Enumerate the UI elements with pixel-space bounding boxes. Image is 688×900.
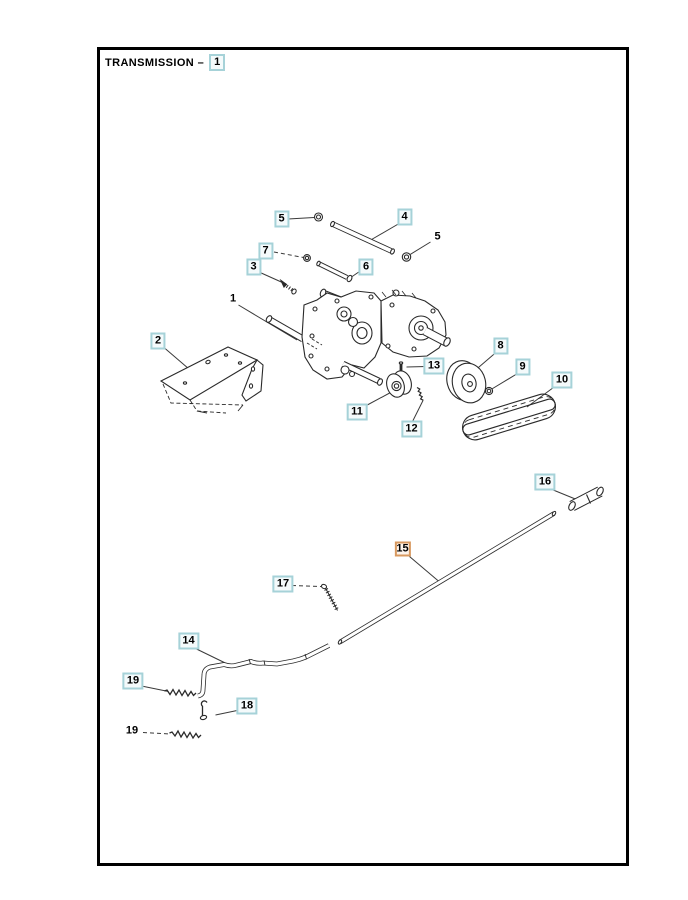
callout-part-4[interactable]: 4 bbox=[397, 208, 412, 225]
callout-part-18[interactable]: 18 bbox=[236, 697, 257, 714]
callout-part-2[interactable]: 2 bbox=[150, 332, 165, 349]
part-sleeve-16 bbox=[567, 486, 604, 511]
callout-part-3[interactable]: 3 bbox=[246, 258, 261, 275]
callout-part-1: 1 bbox=[230, 294, 236, 305]
part-screw-17 bbox=[321, 584, 338, 611]
part-mounting-bracket bbox=[161, 347, 263, 413]
part-nut-7 bbox=[304, 255, 311, 262]
part-nut-9 bbox=[485, 387, 492, 394]
part-nut-5-left bbox=[315, 213, 323, 221]
part-idler-roller-11 bbox=[384, 368, 415, 399]
callout-part-17[interactable]: 17 bbox=[272, 576, 293, 593]
callout-part-5-b: 5 bbox=[434, 232, 440, 243]
exploded-diagram bbox=[0, 0, 688, 900]
callout-part-6[interactable]: 6 bbox=[358, 258, 373, 275]
page-title-text: TRANSMISSION – bbox=[105, 57, 204, 69]
callout-part-12[interactable]: 12 bbox=[401, 421, 422, 438]
part-spring-12 bbox=[417, 388, 423, 401]
callout-part-8[interactable]: 8 bbox=[493, 337, 508, 354]
callout-part-15-highlighted[interactable]: 15 bbox=[394, 542, 410, 557]
part-pin-13 bbox=[399, 362, 402, 371]
part-screw-3 bbox=[281, 281, 297, 295]
part-rod-4 bbox=[330, 221, 395, 255]
callout-part-13[interactable]: 13 bbox=[423, 358, 444, 375]
callout-part-19[interactable]: 19 bbox=[122, 673, 143, 690]
part-nut-5-right bbox=[402, 253, 410, 261]
part-pulley-8 bbox=[443, 357, 490, 406]
part-hook-pin-18 bbox=[200, 701, 207, 720]
part-control-rod-14 bbox=[198, 646, 329, 697]
callout-part-11[interactable]: 11 bbox=[347, 404, 368, 421]
part-spring-19-upper bbox=[165, 690, 197, 697]
callout-part-16[interactable]: 16 bbox=[534, 474, 555, 491]
title-callout-1[interactable]: 1 bbox=[209, 54, 225, 71]
part-spring-19-lower bbox=[170, 731, 202, 738]
part-rod-6 bbox=[316, 261, 353, 283]
callout-part-10[interactable]: 10 bbox=[551, 372, 572, 389]
callout-part-14[interactable]: 14 bbox=[178, 633, 199, 650]
page-title: TRANSMISSION – 1 bbox=[105, 54, 225, 71]
callout-part-5[interactable]: 5 bbox=[274, 210, 289, 227]
callout-part-19-b: 19 bbox=[126, 726, 138, 737]
callout-part-7[interactable]: 7 bbox=[258, 243, 273, 260]
callout-part-9[interactable]: 9 bbox=[515, 359, 530, 376]
part-rod-15 bbox=[338, 511, 557, 645]
